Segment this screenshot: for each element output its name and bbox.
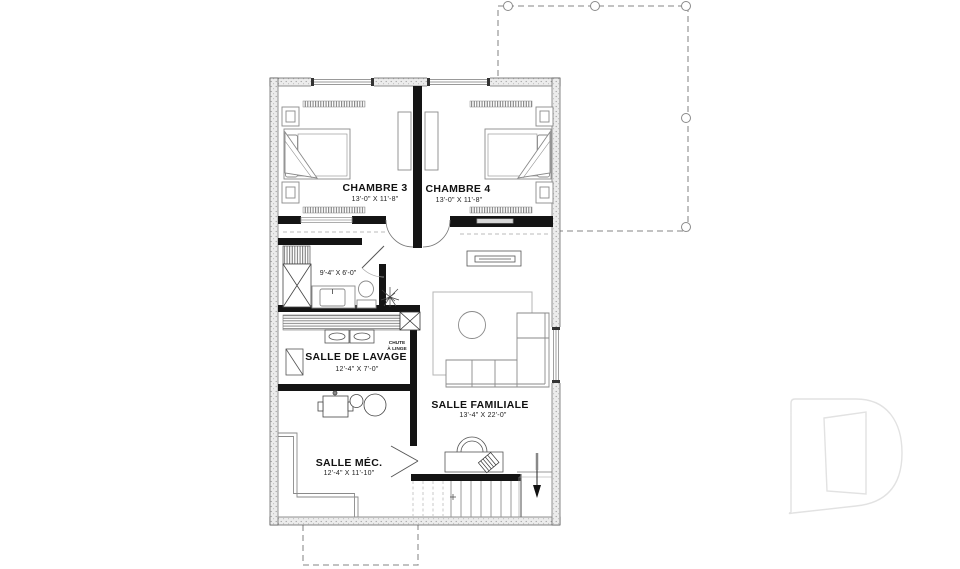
logo-door-icon xyxy=(824,412,866,494)
window-top-left xyxy=(311,78,374,87)
vanity-icon xyxy=(312,286,355,308)
water-heater-icon xyxy=(364,394,386,416)
floor-plan-drawing: CHAMBRE 3 13'-0" X 11'-8" CHAMBRE 4 13'-… xyxy=(0,0,960,569)
window-top-right xyxy=(427,78,490,87)
rug-fringe-icon xyxy=(470,207,532,213)
brand-logo xyxy=(789,399,902,514)
laundry-window-icon xyxy=(286,349,303,375)
family-room xyxy=(433,251,549,473)
laundry-chute-icon xyxy=(400,312,420,330)
room-name-laundry: SALLE DE LAVAGE xyxy=(305,351,407,363)
door-leaf xyxy=(391,446,418,461)
expansion-tank-icon xyxy=(350,395,363,408)
mechanical-room xyxy=(278,391,386,517)
rug-fringe-icon xyxy=(303,101,365,107)
linen-closet-icon xyxy=(283,264,311,307)
counter-icon xyxy=(283,315,400,330)
deck-post-icon xyxy=(682,223,691,232)
deck-post-icon xyxy=(682,2,691,11)
room-name-chambre4: CHAMBRE 4 xyxy=(425,183,490,195)
deck-post-icon xyxy=(591,2,600,11)
room-dims-bathroom: 9'-4" X 6'-0" xyxy=(320,270,357,277)
furnace-icon xyxy=(318,391,353,417)
room-dims-mechanical: 12'-4" X 11'-10" xyxy=(324,470,375,477)
door-arc xyxy=(423,220,450,247)
dryer-icon xyxy=(350,330,374,343)
deck-post-icon xyxy=(504,2,513,11)
toilet-icon xyxy=(357,281,376,308)
rug-fringe-icon xyxy=(470,101,532,107)
floor-plan-page: CHAMBRE 3 13'-0" X 11'-8" CHAMBRE 4 13'-… xyxy=(0,0,960,569)
deck-outline xyxy=(498,6,688,231)
room-dims-chambre4: 13'-0" X 11'-8" xyxy=(436,197,483,204)
porch-outline xyxy=(303,525,418,565)
dresser-icon xyxy=(425,112,438,170)
closet-shelves-icon xyxy=(283,246,310,264)
tv-console-icon xyxy=(467,251,521,266)
down-arrow-icon xyxy=(533,453,541,498)
room-name-mechanical: SALLE MÉC. xyxy=(316,456,383,469)
washer-icon xyxy=(325,330,349,343)
room-dims-laundry: 12'-4" X 7'-0" xyxy=(335,366,378,373)
door-arc xyxy=(386,220,413,247)
dresser-icon xyxy=(398,112,411,170)
room-name-family: SALLE FAMILIALE xyxy=(431,399,528,411)
deck-posts xyxy=(504,2,691,232)
rug-fringe-icon xyxy=(303,207,365,213)
room-dims-chambre3: 13'-0" X 11'-8" xyxy=(352,196,399,203)
room-name-chambre3: CHAMBRE 3 xyxy=(342,182,407,194)
chair-icon xyxy=(457,437,487,452)
room-dims-family: 13'-4" X 22'-0" xyxy=(459,412,507,419)
logo-d-outline xyxy=(789,399,902,514)
window-right-wall xyxy=(552,327,561,383)
deck-post-icon xyxy=(682,114,691,123)
coffee-table-icon xyxy=(459,312,486,339)
chute-label-line1: CHUTE xyxy=(389,340,406,346)
